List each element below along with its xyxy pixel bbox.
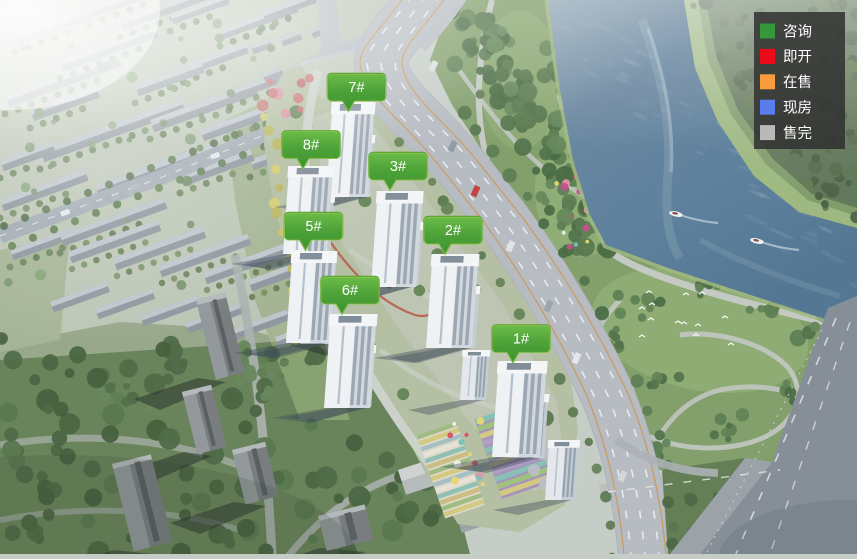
svg-text:5#: 5# (305, 219, 321, 235)
svg-text:现房: 现房 (783, 100, 812, 117)
svg-text:售完: 售完 (783, 125, 812, 142)
svg-text:在售: 在售 (783, 74, 812, 91)
svg-text:3#: 3# (390, 159, 406, 175)
svg-text:6#: 6# (342, 283, 358, 299)
svg-text:咨询: 咨询 (783, 23, 812, 40)
svg-text:即开: 即开 (783, 50, 812, 66)
svg-text:1#: 1# (513, 332, 529, 348)
svg-text:8#: 8# (303, 138, 319, 154)
svg-text:7#: 7# (348, 80, 364, 96)
svg-text:2#: 2# (445, 223, 461, 239)
